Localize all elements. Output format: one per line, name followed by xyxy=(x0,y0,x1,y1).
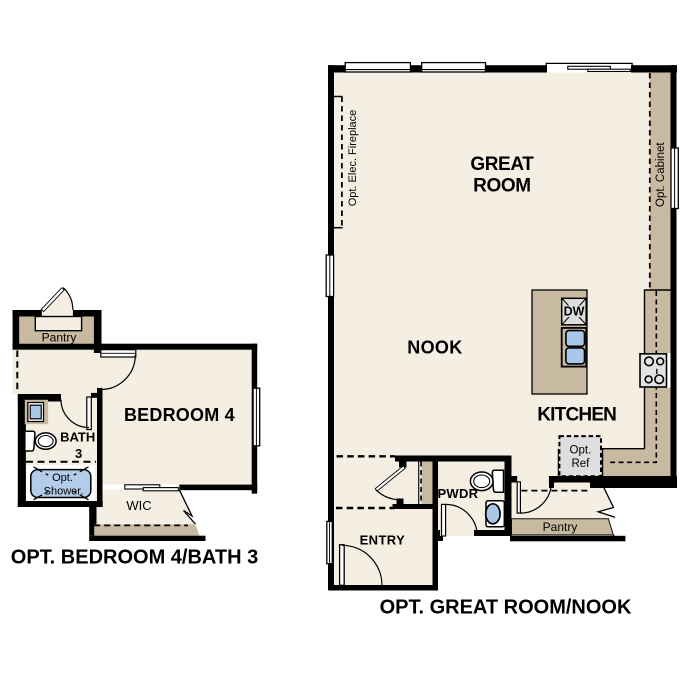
svg-text:BEDROOM 4: BEDROOM 4 xyxy=(124,405,235,425)
svg-text:Opt. Cabinet: Opt. Cabinet xyxy=(655,142,667,207)
svg-text:3: 3 xyxy=(75,446,82,461)
svg-text:KITCHEN: KITCHEN xyxy=(537,405,616,426)
svg-text:ENTRY: ENTRY xyxy=(360,533,406,548)
svg-text:GREAT: GREAT xyxy=(470,154,534,175)
svg-text:OPT. BEDROOM 4/BATH 3: OPT. BEDROOM 4/BATH 3 xyxy=(11,547,258,569)
svg-text:ROOM: ROOM xyxy=(473,176,531,197)
svg-text:DW: DW xyxy=(564,305,585,319)
svg-text:Ref: Ref xyxy=(571,458,590,470)
svg-text:PWDR: PWDR xyxy=(437,486,478,501)
svg-text:Opt.: Opt. xyxy=(52,472,73,484)
svg-text:Opt.: Opt. xyxy=(570,445,592,457)
svg-text:OPT. GREAT ROOM/NOOK: OPT. GREAT ROOM/NOOK xyxy=(380,597,632,619)
svg-text:Pantry: Pantry xyxy=(543,520,578,534)
svg-text:WIC: WIC xyxy=(126,498,151,513)
svg-text:Pantry: Pantry xyxy=(42,330,77,344)
svg-text:BATH: BATH xyxy=(60,430,95,445)
svg-text:Shower.: Shower. xyxy=(44,485,84,497)
svg-text:Opt. Elec. Fireplace: Opt. Elec. Fireplace xyxy=(347,110,359,207)
svg-text:NOOK: NOOK xyxy=(407,337,462,357)
